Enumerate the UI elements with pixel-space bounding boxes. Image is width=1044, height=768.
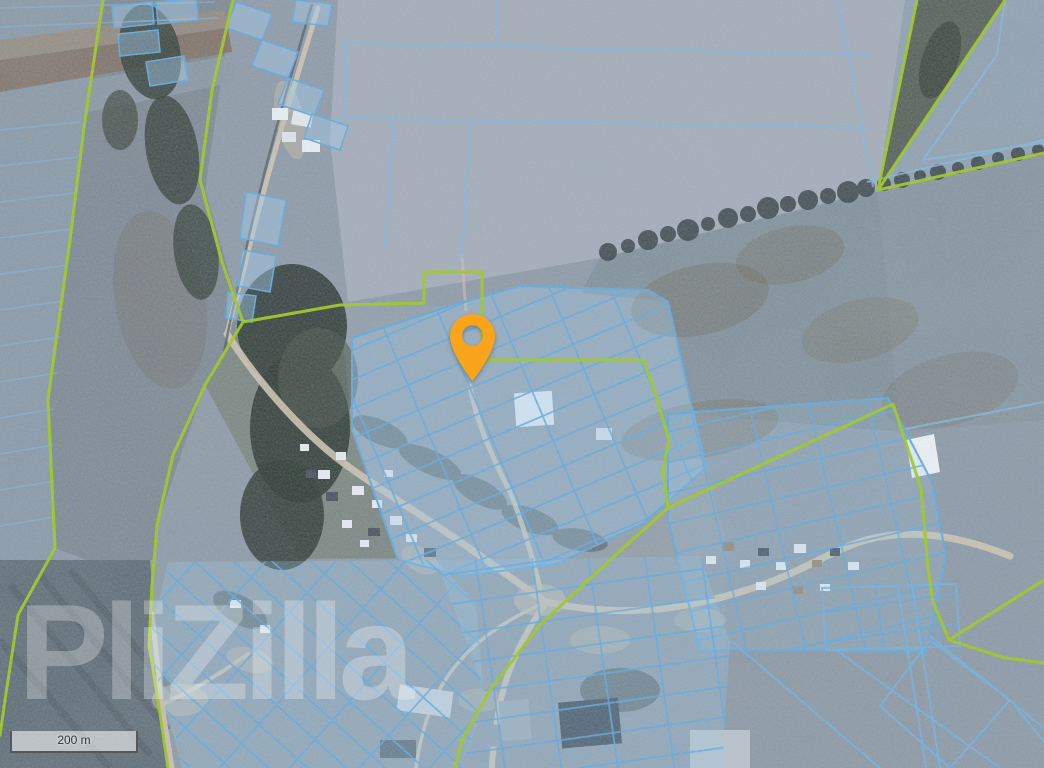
map-viewport[interactable]: PliZilla 200 m [0, 0, 1044, 768]
satellite-imagery [0, 0, 1044, 768]
imagery-grain [0, 0, 1044, 768]
location-pin-icon [450, 314, 495, 382]
scale-bar-label: 200 m [57, 733, 90, 747]
location-pin[interactable] [450, 314, 495, 382]
scale-bar: 200 m [10, 731, 138, 753]
